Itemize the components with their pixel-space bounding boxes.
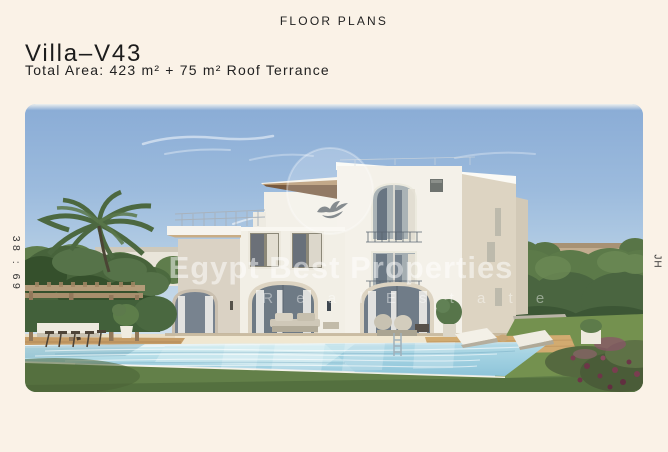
- svg-text:Egypt Best Properties: Egypt Best Properties: [169, 250, 514, 285]
- svg-text:R e a l E s t a t e: R e a l E s t a t e: [262, 290, 553, 307]
